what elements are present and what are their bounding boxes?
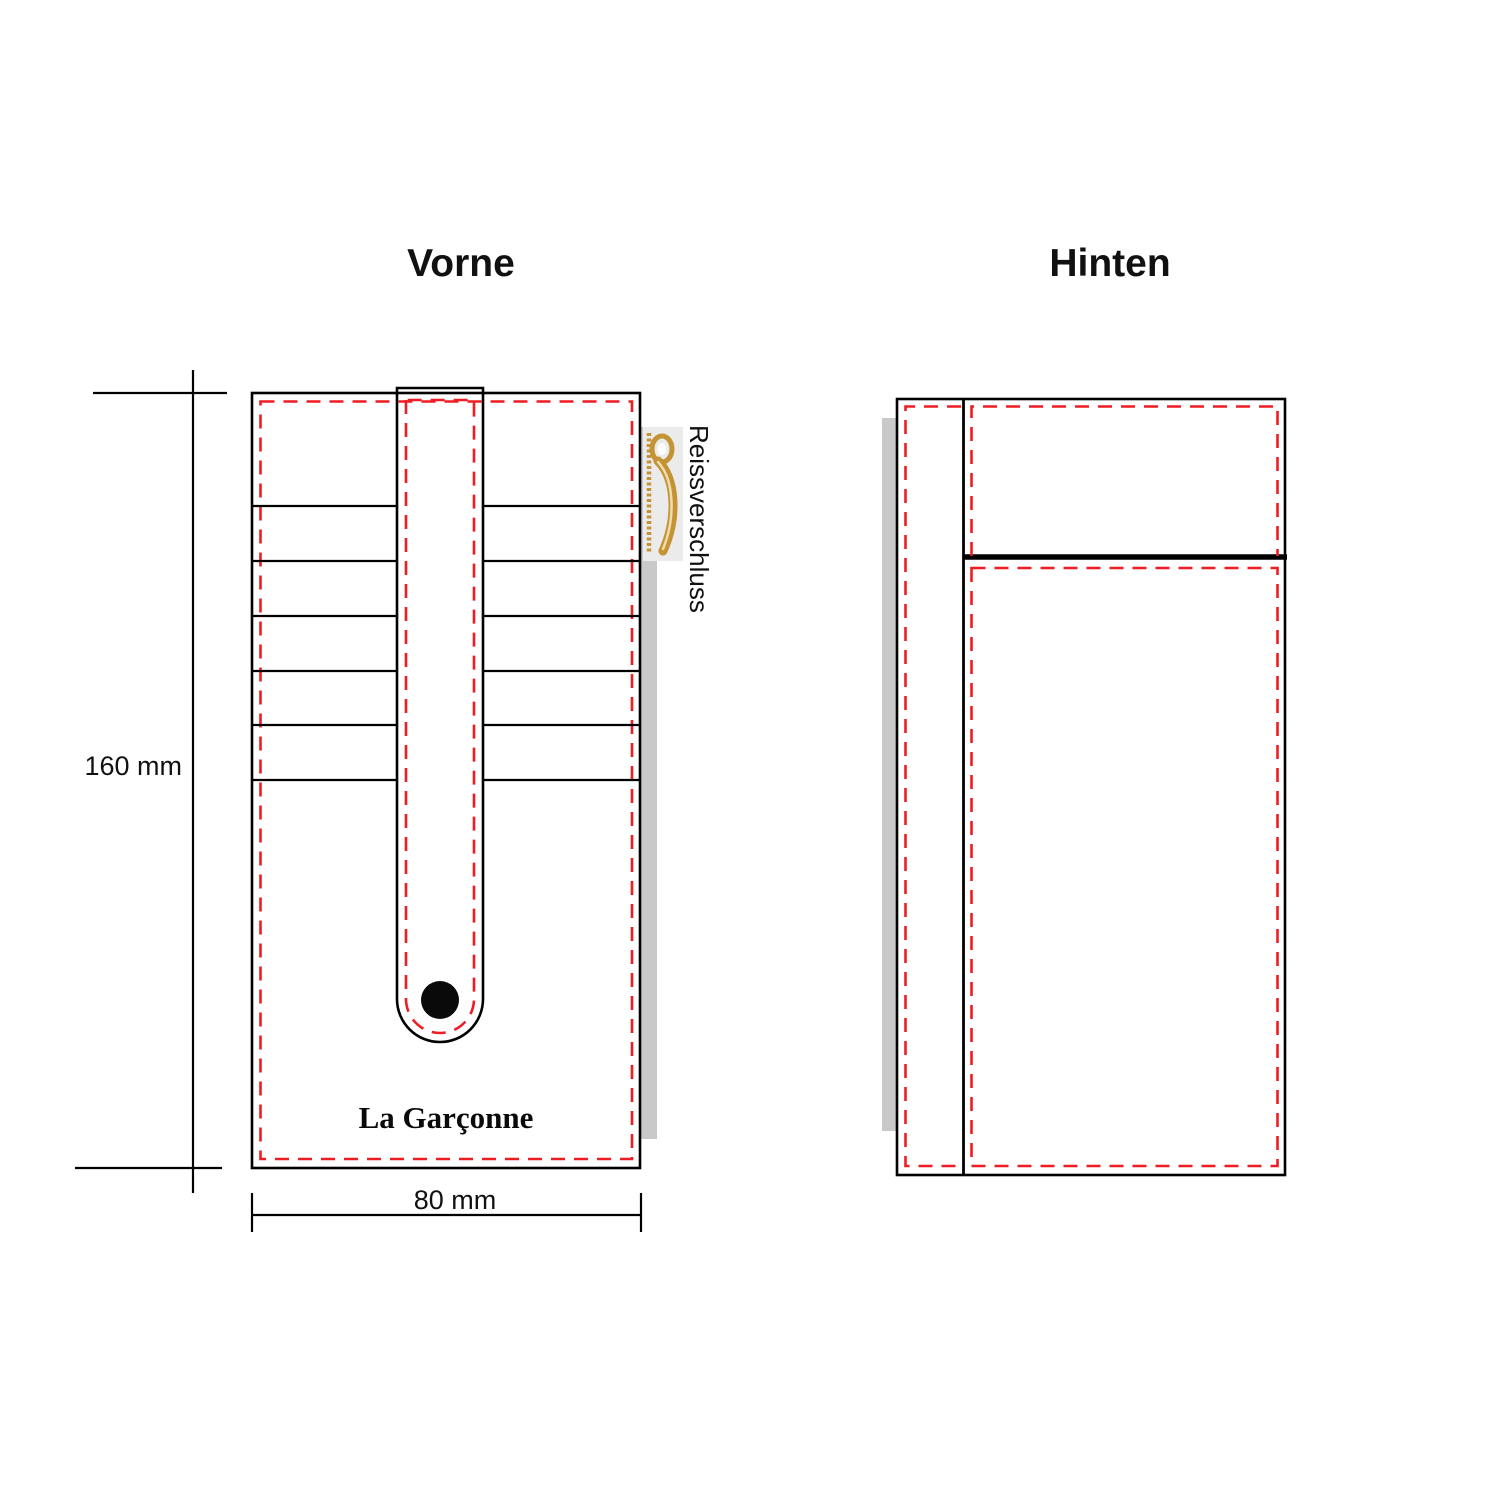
- zipper-pull-icon: [643, 427, 683, 561]
- back-left-strip-stitch: [906, 407, 962, 1167]
- width-dimension-label: 80 mm: [375, 1185, 535, 1216]
- back-body-outline: [897, 399, 1285, 1175]
- front-view-title: Vorne: [351, 242, 571, 286]
- front-card-slot-lines: [252, 506, 640, 780]
- back-lower-pocket-stitch: [972, 568, 1278, 1166]
- back-view-title: Hinten: [1000, 242, 1220, 286]
- brand-logo-text: La Garçonne: [316, 1100, 576, 1136]
- back-upper-pocket-stitch: [972, 407, 1278, 557]
- snap-button-icon: [421, 981, 459, 1019]
- height-dimension-label: 160 mm: [62, 751, 182, 782]
- front-pull-tab-stitch: [406, 400, 474, 1033]
- diagram-linework: [0, 0, 1500, 1500]
- back-shadow: [882, 418, 897, 1131]
- front-pull-tab-outline: [397, 388, 483, 1042]
- front-view: [252, 388, 683, 1168]
- back-view: [882, 399, 1287, 1175]
- zipper-annotation-label: Reissverschluss: [683, 425, 714, 613]
- spec-diagram-canvas: Vorne Hinten 160 mm 80 mm La Garçonne Re…: [0, 0, 1500, 1500]
